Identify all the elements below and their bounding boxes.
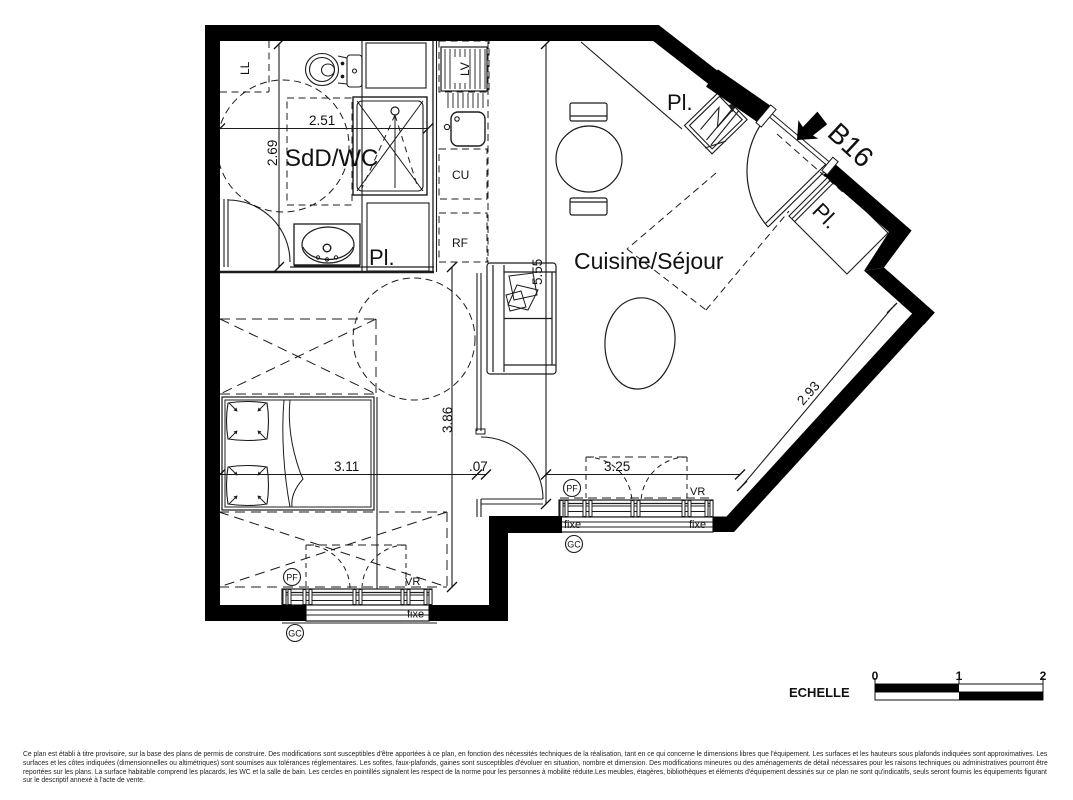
- svg-text:SdD/WC: SdD/WC: [285, 145, 378, 172]
- svg-text:Pl.: Pl.: [369, 245, 395, 270]
- svg-text:CU: CU: [452, 168, 469, 182]
- svg-text:fixe: fixe: [407, 609, 424, 621]
- svg-text:GC: GC: [288, 629, 302, 639]
- svg-text:GC: GC: [567, 540, 581, 550]
- svg-text:1: 1: [956, 669, 963, 683]
- svg-text:2.69: 2.69: [265, 140, 280, 166]
- svg-text:0: 0: [872, 669, 879, 683]
- svg-text:RF: RF: [452, 236, 468, 250]
- svg-text:LL: LL: [238, 61, 252, 75]
- svg-text:PF: PF: [566, 484, 578, 494]
- svg-text:5.55: 5.55: [530, 259, 545, 285]
- svg-text:Pl.: Pl.: [667, 90, 693, 115]
- svg-text:fixe: fixe: [689, 519, 706, 531]
- svg-text:ECHELLE: ECHELLE: [789, 685, 850, 700]
- svg-text:2.51: 2.51: [309, 113, 335, 128]
- svg-text:VR: VR: [690, 486, 705, 498]
- svg-text:fixe: fixe: [564, 519, 581, 531]
- svg-text:3.25: 3.25: [604, 459, 630, 474]
- svg-text:VR: VR: [405, 576, 420, 588]
- svg-text:3.11: 3.11: [334, 459, 359, 474]
- svg-text:LV: LV: [458, 62, 472, 76]
- svg-text:Cuisine/Séjour: Cuisine/Séjour: [574, 248, 724, 274]
- svg-text:.07: .07: [469, 459, 488, 474]
- svg-text:2: 2: [1040, 669, 1047, 683]
- svg-text:PF: PF: [286, 573, 298, 583]
- svg-text:3.86: 3.86: [440, 407, 455, 433]
